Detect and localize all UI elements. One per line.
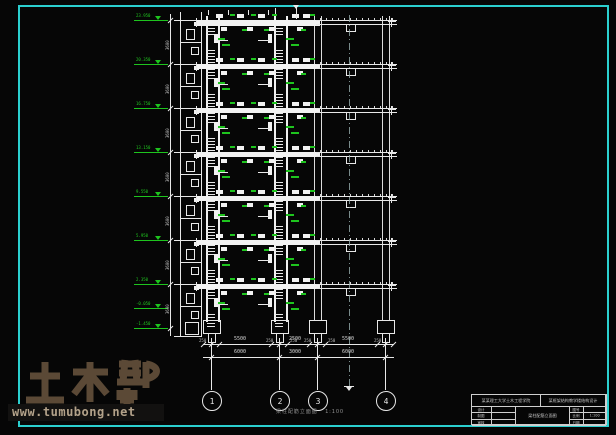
title-block-drawing-title: 梁柱配筋立面图 <box>516 407 570 426</box>
dimension-text: 3000 <box>289 350 301 355</box>
title-block-label-text: 审核 <box>478 420 485 425</box>
dimension-line <box>203 344 394 345</box>
floor-beam-outline <box>316 284 397 285</box>
beam-end-tick <box>388 65 396 66</box>
ladder-detail-box <box>191 91 199 99</box>
leader-line <box>216 172 228 173</box>
rebar-note <box>301 73 306 75</box>
footing <box>309 320 327 334</box>
rebar-note <box>242 161 247 163</box>
annotation-block <box>258 190 265 194</box>
annotation-block <box>221 27 227 31</box>
rebar-note <box>301 117 306 119</box>
grid-extension-line <box>211 338 212 390</box>
ladder-rung <box>174 336 202 337</box>
story-dimension: 3600 <box>166 40 170 50</box>
rebar-note <box>301 161 306 163</box>
annotation-block <box>258 14 265 18</box>
dimension-line <box>203 357 394 358</box>
annotation-block <box>303 102 310 106</box>
rebar-note <box>222 264 230 266</box>
title-block-value-text: 1:100 <box>589 414 599 418</box>
secondary-beam <box>346 156 356 164</box>
beam-end-tick <box>388 21 396 22</box>
footing <box>377 320 395 334</box>
column-stirrups <box>275 138 283 151</box>
annotation-block <box>268 78 272 87</box>
rebar-note <box>230 190 235 192</box>
floor-beam-outline <box>316 20 397 21</box>
secondary-beam <box>346 24 356 32</box>
annotation-block <box>247 291 253 295</box>
annotation-block <box>303 190 310 194</box>
annotation-block <box>269 203 275 207</box>
annotation-block <box>214 298 218 307</box>
level-label: 9.550 <box>136 190 148 194</box>
level-label: 13.150 <box>136 146 150 150</box>
floor-beam-outline <box>316 64 397 65</box>
grid-bubble: 1 <box>202 391 222 411</box>
floor-beam <box>197 240 320 245</box>
dimension-sub-text: 250 <box>199 339 206 343</box>
annotation-block <box>269 27 275 31</box>
floor-beam-outline <box>316 244 397 245</box>
rebar-note <box>242 205 247 207</box>
column-stirrups <box>275 270 283 283</box>
level-marker <box>134 108 168 109</box>
secondary-beam <box>346 288 356 296</box>
rebar-note <box>291 88 299 90</box>
column-stirrups <box>207 50 215 63</box>
beam-end-tick <box>388 197 396 198</box>
rebar-note <box>264 249 269 251</box>
annotation-block <box>216 14 223 18</box>
column-stirrups <box>275 25 283 37</box>
column-stirrups <box>275 113 283 125</box>
beam-end-tick <box>391 18 392 27</box>
title-block-drawing-title-text: 梁柱配筋立面图 <box>528 413 556 419</box>
annotation-block <box>258 102 265 106</box>
leader-line <box>216 216 228 217</box>
title-block-org-text: 某某理工大学土木工程学院 <box>482 398 531 404</box>
rebar-note <box>251 102 256 104</box>
column-stirrups <box>207 138 215 151</box>
annotation-block <box>214 166 218 175</box>
rebar-note <box>310 14 315 16</box>
drawing-caption: 梁柱配筋立面图 1:100 <box>242 407 378 415</box>
floor-beam-outline <box>316 288 397 289</box>
annotation-block <box>216 58 223 62</box>
column-stirrups <box>275 69 283 81</box>
column-stirrups <box>207 94 215 107</box>
rebar-note <box>286 126 294 128</box>
annotation-block <box>216 146 223 150</box>
ladder-detail-box <box>191 47 199 55</box>
level-triangle-icon <box>155 236 161 240</box>
leader-line <box>216 304 228 305</box>
dimension-sub-text: 250 <box>304 339 311 343</box>
level-triangle-icon <box>155 304 161 308</box>
dimension-sub-text: 250 <box>374 339 381 343</box>
leader-line <box>216 260 228 261</box>
level-label: -0.050 <box>136 302 150 306</box>
beam-end-tick <box>391 282 392 291</box>
floor-beam-outline <box>316 240 397 241</box>
rebar-note <box>251 278 256 280</box>
rebar-note <box>242 117 247 119</box>
annotation-block <box>214 78 218 87</box>
annotation-block <box>216 102 223 106</box>
beam-end-tick <box>196 62 197 71</box>
rebar-note <box>286 170 294 172</box>
level-marker <box>134 196 168 197</box>
floor-beam-outline <box>316 196 397 197</box>
rebar-note <box>272 278 277 280</box>
rebar-note <box>251 146 256 148</box>
title-block-project-text: 某框架结构教学楼结构设计 <box>549 398 598 404</box>
dimension-text: 6000 <box>342 350 354 355</box>
annotation-block <box>216 278 223 282</box>
grid-extension-line <box>279 338 280 390</box>
annotation-block <box>303 146 310 150</box>
leader-line <box>258 172 270 173</box>
secondary-beam <box>346 244 356 252</box>
slab-ticks <box>320 106 394 108</box>
column-stirrups <box>207 270 215 283</box>
dimension-sub-text: 250 <box>290 339 297 343</box>
rebar-note <box>272 234 277 236</box>
story-dimension: 3600 <box>166 216 170 226</box>
floor-beam <box>197 64 320 69</box>
rebar-note <box>301 249 306 251</box>
annotation-block <box>292 190 299 194</box>
annotation-block <box>214 254 218 263</box>
rebar-note <box>242 249 247 251</box>
annotation-block <box>303 278 310 282</box>
annotation-block <box>292 146 299 150</box>
leader-line <box>258 216 270 217</box>
roof-dim-tick <box>228 10 229 15</box>
floor-beam <box>197 152 320 157</box>
title-block-project: 某框架结构教学楼结构设计 <box>541 395 606 407</box>
level-marker <box>134 64 168 65</box>
annotation-block <box>247 159 253 163</box>
rebar-note <box>242 29 247 31</box>
rebar-note <box>230 278 235 280</box>
grid-extension-line <box>317 338 318 390</box>
beam-end-tick <box>196 238 197 247</box>
level-triangle-icon <box>155 324 161 328</box>
rebar-note <box>222 44 230 46</box>
dimension-text: 6000 <box>234 350 246 355</box>
title-block-label-text: 图号 <box>573 407 580 412</box>
level-label: 20.350 <box>136 58 150 62</box>
ladder-base <box>185 322 199 335</box>
beam-end-tick <box>196 150 197 159</box>
annotation-block <box>268 34 272 43</box>
slab-ticks <box>320 18 394 20</box>
level-marker <box>134 20 168 21</box>
annotation-block <box>221 71 227 75</box>
beam-end-tick <box>388 285 396 286</box>
level-marker <box>134 284 168 285</box>
annotation-block <box>237 234 244 238</box>
story-dimension: 3600 <box>166 128 170 138</box>
floor-beam <box>197 20 320 26</box>
annotation-block <box>237 102 244 106</box>
annotation-block <box>269 71 275 75</box>
annotation-block <box>268 166 272 175</box>
annotation-block <box>216 190 223 194</box>
level-label: -1.450 <box>136 322 150 326</box>
annotation-block <box>221 291 227 295</box>
beam-end-tick <box>196 106 197 115</box>
watermark-logo <box>24 358 164 408</box>
column-stirrups <box>275 50 283 63</box>
level-triangle-icon <box>155 16 161 20</box>
annotation-block <box>214 122 218 131</box>
ladder-detail-box <box>186 73 195 84</box>
floor-beam-outline <box>316 112 397 113</box>
beam-end-tick <box>196 194 197 203</box>
leader-line <box>258 40 270 41</box>
floor-beam-outline <box>316 24 397 25</box>
rebar-note <box>301 29 306 31</box>
annotation-block <box>221 115 227 119</box>
column-stirrups <box>275 94 283 107</box>
leader-line <box>216 84 228 85</box>
ladder-rung <box>180 42 201 43</box>
ladder-detail-box <box>186 249 195 260</box>
secondary-beam <box>346 112 356 120</box>
title-block-label: 日期 <box>570 420 584 426</box>
level-label: 16.750 <box>136 102 150 106</box>
rebar-note <box>291 132 299 134</box>
rebar-note <box>251 190 256 192</box>
rebar-note <box>222 220 230 222</box>
story-dimension: 3600 <box>166 260 170 270</box>
annotation-block <box>268 210 272 219</box>
rebar-note <box>286 258 294 260</box>
annotation-block <box>237 190 244 194</box>
rebar-note <box>286 214 294 216</box>
annotation-block <box>258 278 265 282</box>
rebar-note <box>291 264 299 266</box>
roof-dim-tick <box>248 10 249 15</box>
rebar-note <box>242 73 247 75</box>
column-stirrups <box>275 289 283 301</box>
floor-beam <box>197 196 320 201</box>
ladder-detail-box <box>191 179 199 187</box>
footing <box>203 320 221 334</box>
ladder-detail-box <box>186 161 195 172</box>
rebar-note <box>286 82 294 84</box>
column-stirrups <box>275 182 283 195</box>
annotation-block <box>221 203 227 207</box>
ladder-rung <box>180 86 201 87</box>
title-block-value <box>492 420 516 426</box>
cad-sheet: 23.95020.35016.75013.1509.5505.9502.350-… <box>0 0 616 435</box>
annotation-block <box>237 14 244 18</box>
rebar-note <box>222 88 230 90</box>
ladder-detail-box <box>191 135 199 143</box>
annotation-block <box>247 115 253 119</box>
level-label: 23.950 <box>136 14 150 18</box>
annotation-block <box>258 58 265 62</box>
rebar-note <box>272 146 277 148</box>
column-stirrups <box>207 182 215 195</box>
column-stirrups <box>207 226 215 239</box>
annotation-block <box>237 278 244 282</box>
rebar-note <box>272 58 277 60</box>
roof-dim-tick <box>275 8 276 14</box>
slab-ticks <box>320 150 394 152</box>
floor-beam-outline <box>316 108 397 109</box>
rebar-note <box>291 220 299 222</box>
annotation-block <box>268 122 272 131</box>
beam-end-tick <box>196 18 197 27</box>
title-block-label: 审核 <box>472 420 492 426</box>
level-triangle-icon <box>155 60 161 64</box>
rebar-note <box>222 308 230 310</box>
annotation-block <box>221 247 227 251</box>
rebar-note <box>272 190 277 192</box>
dimension-sub-text: 250 <box>266 339 273 343</box>
annotation-block <box>292 234 299 238</box>
title-block-label-text: 制图 <box>478 413 485 418</box>
rebar-note <box>272 102 277 104</box>
column-stirrups <box>275 157 283 169</box>
rebar-note <box>310 190 315 192</box>
annotation-block <box>268 298 272 307</box>
level-marker <box>134 240 168 241</box>
column-stirrups <box>275 201 283 213</box>
rebar-note <box>264 205 269 207</box>
beam-end-tick <box>391 150 392 159</box>
rebar-note <box>230 234 235 236</box>
rebar-note <box>291 308 299 310</box>
beam-end-tick <box>388 109 396 110</box>
leader-line <box>258 304 270 305</box>
annotation-block <box>258 146 265 150</box>
ladder-detail-box <box>186 293 195 304</box>
floor-beam <box>197 108 320 113</box>
datum-icon <box>346 387 352 391</box>
annotation-block <box>237 146 244 150</box>
annotation-block <box>268 254 272 263</box>
annotation-block <box>258 234 265 238</box>
ladder-detail-box <box>191 223 199 231</box>
beam-end-tick <box>388 241 396 242</box>
annotation-block <box>237 58 244 62</box>
caption-scale: 1:100 <box>325 409 344 415</box>
rebar-note <box>291 44 299 46</box>
beam-end-tick <box>196 282 197 291</box>
rebar-note <box>310 58 315 60</box>
level-marker <box>134 308 168 309</box>
rebar-note <box>230 58 235 60</box>
grid-bubble: 4 <box>376 391 396 411</box>
rebar-note <box>301 293 306 295</box>
leader-line <box>258 128 270 129</box>
slab-ticks <box>320 62 394 64</box>
slab-ticks <box>320 194 394 196</box>
leader-line <box>216 128 228 129</box>
annotation-block <box>303 14 310 18</box>
rebar-note <box>251 14 256 16</box>
level-triangle-icon <box>155 104 161 108</box>
level-marker <box>134 152 168 153</box>
dimension-text: 5500 <box>342 337 354 342</box>
floor-beam-outline <box>316 200 397 201</box>
annotation-block <box>269 291 275 295</box>
watermark-url: www.tumubong.net <box>8 404 164 421</box>
rebar-note <box>310 278 315 280</box>
rebar-note <box>264 117 269 119</box>
slab-ticks <box>320 238 394 240</box>
ladder-rung <box>180 218 201 219</box>
annotation-block <box>216 234 223 238</box>
roof-dim-tick <box>268 10 269 15</box>
leader-line <box>258 84 270 85</box>
rebar-note <box>286 302 294 304</box>
secondary-beam <box>346 200 356 208</box>
dimension-sub-text: 250 <box>328 339 335 343</box>
leader-line <box>216 40 228 41</box>
floor-beam-outline <box>316 68 397 69</box>
rebar-note <box>310 146 315 148</box>
rebar-note <box>230 14 235 16</box>
beam-end-tick <box>391 106 392 115</box>
secondary-beam <box>346 68 356 76</box>
level-triangle-icon <box>155 148 161 152</box>
level-triangle-icon <box>155 192 161 196</box>
annotation-block <box>292 278 299 282</box>
floor-beam-outline <box>316 156 397 157</box>
annotation-block <box>292 102 299 106</box>
title-block-value <box>584 420 606 426</box>
dimension-text: 5500 <box>234 337 246 342</box>
beam-end-tick <box>391 238 392 247</box>
column-stirrups <box>275 245 283 257</box>
rebar-note <box>251 234 256 236</box>
beam-end-tick <box>391 62 392 71</box>
annotation-block <box>247 27 253 31</box>
rebar-note <box>301 205 306 207</box>
floor-beam-outline <box>316 152 397 153</box>
annotation-block <box>303 58 310 62</box>
level-label: 5.950 <box>136 234 148 238</box>
rebar-note <box>310 234 315 236</box>
annotation-block <box>247 203 253 207</box>
rebar-note <box>264 29 269 31</box>
rebar-note <box>286 38 294 40</box>
slab-ticks <box>320 282 394 284</box>
annotation-block <box>269 159 275 163</box>
rebar-note <box>264 73 269 75</box>
column-stirrups <box>275 226 283 239</box>
rebar-note <box>264 161 269 163</box>
ladder-rung <box>180 306 201 307</box>
rebar-note <box>251 58 256 60</box>
floor-beam <box>197 284 320 289</box>
roof-level-icon <box>293 5 299 9</box>
footing <box>271 320 289 334</box>
level-marker <box>134 328 168 329</box>
ladder-detail-box <box>186 205 195 216</box>
title-block-label-text: 设计 <box>478 407 485 412</box>
annotation-block <box>221 159 227 163</box>
